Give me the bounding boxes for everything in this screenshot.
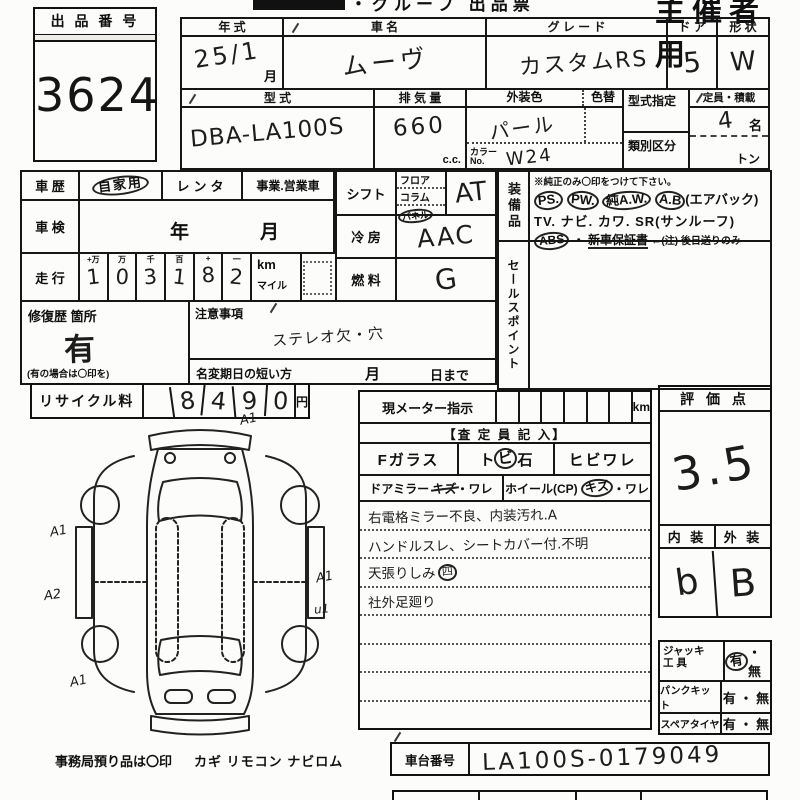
mileage-unit-cell: km マイル <box>250 252 302 302</box>
grade-cell: グ レ ー ド カスタムRS <box>485 17 668 90</box>
inspection-cell: 年 月 <box>78 199 335 254</box>
rename-day: 日まで <box>430 365 469 384</box>
door-cell: ド ア 5 <box>666 17 718 90</box>
door-label: ド ア <box>668 19 716 37</box>
displacement-cell: 排 気 量 660 c.c. <box>373 88 467 170</box>
comment-line: 天張りしみ 四 <box>360 559 650 588</box>
assessor-header: 【査 定 員 記 入】 <box>360 424 650 444</box>
history-label: 車 歴 <box>20 170 80 201</box>
inspection-label: 車 検 <box>20 199 80 254</box>
name-value: ムーヴ <box>340 39 430 84</box>
wheel-kizu: キズ <box>584 479 609 495</box>
jack-value: 有・ 無 <box>725 642 770 680</box>
windshield <box>158 478 242 521</box>
exterior-value: B <box>712 547 773 618</box>
office-note-label: 事務局預り品は〇印 <box>55 751 172 770</box>
score-value: 3.5 <box>668 434 761 502</box>
lot-rule <box>35 35 155 42</box>
year-value: 25/1 <box>192 36 261 74</box>
recycle-unit: 円 <box>294 385 308 417</box>
color-value: パール <box>487 108 556 146</box>
equipment-note: ※純正のみ〇印をつけて下さい。 <box>534 174 766 188</box>
recycle-box: リサイクル料 8 4 9 0 円 <box>30 383 310 419</box>
ac-value: AAC <box>416 220 476 254</box>
rear-bumper <box>151 716 249 735</box>
score-label: 評 価 点 <box>660 387 770 412</box>
shift-opt-column: コラム <box>397 189 445 206</box>
equip-ps: PS. <box>537 191 559 208</box>
grade-value: カスタムRS <box>518 41 649 82</box>
grade-label: グ レ ー ド <box>487 19 666 37</box>
recycle-d2: 4 <box>201 383 235 418</box>
office-note: 事務局預り品は〇印 カギ リモコン ナビロム <box>55 751 343 770</box>
shape-label: 形 状 <box>718 19 768 37</box>
diagram-mark: u1 <box>313 601 330 617</box>
history-private-label: 自家用 <box>97 174 144 194</box>
repair-note: (有の場合は〇印を) <box>27 366 109 380</box>
color-label: 外装色 <box>467 90 582 106</box>
form-title: ・グループ 出品票 <box>350 0 535 15</box>
rear-window <box>158 636 242 675</box>
equip-ab-paren: (エアバック) <box>685 192 758 207</box>
year-month-suffix: 月 <box>264 66 277 85</box>
chassis-value: LA100S-0179049 <box>470 742 723 777</box>
wheel-rr <box>282 626 318 662</box>
repair-value: 有 <box>63 323 96 369</box>
recycle-label: リサイクル料 <box>32 385 142 417</box>
sales-point-content <box>528 240 772 390</box>
chassis-box: 車台番号 LA100S-0179049 <box>390 742 770 776</box>
shape-cell: 形 状 W <box>716 17 770 90</box>
comment-line: 右電格ミラー不良、内装汚れ.A <box>360 502 650 531</box>
bottom-partial-row <box>392 790 768 800</box>
punk-value: 有 ・ 無 <box>722 682 770 712</box>
auction-sheet: ・グループ 出品票 主催者用 出 品 番 号 3624 年 式 25/1 月 車… <box>0 0 800 800</box>
comment-line: ハンドルスレ、シートカバー付.不明 <box>360 531 650 560</box>
shape-value: W <box>716 35 769 88</box>
interior-value: b <box>656 546 719 620</box>
color-cell: 外装色 色替 パール カラーNo. W24 <box>465 88 624 170</box>
mileage-d3: 3 <box>136 264 165 290</box>
mirror-kizu: キズ <box>433 480 457 497</box>
history-private: 自家用 <box>78 170 163 201</box>
comment-line <box>360 616 650 645</box>
name-label: 車 名 <box>284 19 485 37</box>
displacement-value: 660 <box>392 112 447 142</box>
year-cell: 年 式 25/1 月 <box>180 17 284 90</box>
jack-label: ジャッキ 工 具 <box>660 642 725 680</box>
wheel-rl <box>82 626 118 662</box>
class-label: 類別区分 <box>624 133 688 154</box>
mileage-mile: マイル <box>257 277 300 292</box>
comment-line <box>360 673 650 702</box>
mileage-d1: 1 <box>79 264 108 291</box>
year-label: 年 式 <box>182 19 282 37</box>
sales-point-label-cell: セールスポイント <box>497 240 530 390</box>
recycle-d1: 8 <box>169 383 204 419</box>
wheel-fr <box>281 486 319 524</box>
mileage-d4: 1 <box>165 264 194 291</box>
repair-label: 修復歴 箇所 <box>22 302 188 325</box>
color-change-label: 色替 <box>582 90 622 106</box>
inspection-year: 年 <box>170 217 189 244</box>
punk-label: パンクキット <box>660 682 722 712</box>
equip-pw: PW. <box>570 191 595 208</box>
equip-ab: A.B <box>658 191 682 208</box>
interior-label: 内 装 <box>660 526 714 547</box>
wheel-row: ホイール(CP) キズ・ワレ <box>504 476 650 500</box>
capacity-unit: 名 <box>749 115 762 134</box>
recycle-d4: 0 <box>264 384 296 418</box>
displacement-unit: c.c. <box>443 154 461 166</box>
meter-unit: km <box>631 392 650 422</box>
shift-value: AT <box>454 176 489 209</box>
repair-cell: 修復歴 箇所 有 (有の場合は〇印を) <box>20 300 190 385</box>
equip-aw: 純A.W. <box>606 191 648 209</box>
mileage-d2: 0 <box>108 264 136 290</box>
meter-label: 現メーター指示 <box>360 392 495 422</box>
spare-value: 有 ・ 無 <box>722 714 770 733</box>
assessor-table: 現メーター指示 km 【査 定 員 記 入】 Fガラス トビ石 ヒビワレ ドアミ… <box>358 390 652 730</box>
mileage-d6: 2 <box>222 264 251 290</box>
equip-line2: TV. ナビ. カワ. SR(サンルーフ) <box>534 211 766 230</box>
rename-month: 月 <box>365 363 380 384</box>
inspection-month: 月 <box>260 217 279 244</box>
capacity-cell: 定員・積載 4 名 トン <box>688 88 770 170</box>
rename-label: 名変期日の短い方 <box>196 365 292 382</box>
comment-line <box>360 702 650 729</box>
front-bumper <box>149 430 251 450</box>
shift-label: シフト <box>335 170 397 216</box>
mileage-d5: 8 <box>194 262 222 288</box>
diagram-mark: A1 <box>49 523 69 541</box>
mileage-digits: +万1 万0 千3 百1 +8 一2 <box>78 252 252 302</box>
lot-label: 出 品 番 号 <box>35 9 155 35</box>
lot-box: 出 品 番 号 3624 <box>33 7 157 162</box>
model-label: 型 式 <box>182 90 373 108</box>
spare-label: スペアタイヤ <box>660 714 722 733</box>
mileage-label: 走 行 <box>20 252 80 302</box>
diagram-mark: A2 <box>43 587 62 604</box>
comment-line <box>360 645 650 674</box>
model-cell: 型 式 DBA-LA100S <box>180 88 375 170</box>
fuel-value-cell: G <box>395 257 497 302</box>
fglass-label: Fガラス <box>360 444 459 474</box>
mileage-km: km <box>257 257 300 272</box>
exterior-label: 外 装 <box>714 526 770 547</box>
sales-point-label: セールスポイント <box>505 259 522 371</box>
chassis-label: 車台番号 <box>392 744 470 774</box>
fuel-value: G <box>433 262 459 298</box>
color-no-value: W24 <box>505 144 554 170</box>
rename-cell: 名変期日の短い方 月 日まで <box>188 358 497 385</box>
car-diagram: A1 A1 A2 A1 u1 A1 <box>48 418 352 742</box>
type-designation-cell: 型式指定 類別区分 <box>622 88 690 170</box>
office-note-items: カギ リモコン ナビロム <box>194 751 343 770</box>
door-mirror-row: ドアミラー キズ・ワレ <box>360 476 504 500</box>
ac-value-cell: AAC <box>395 214 497 259</box>
history-rental: レンタ <box>161 170 243 201</box>
equipment-content: ※純正のみ〇印をつけて下さい。 PS. PW. 純A.W. A.B(エアバック)… <box>528 170 772 242</box>
caution-value: ステレオ欠・穴 <box>271 322 384 351</box>
equipment-label-cell: 装備品 <box>497 170 530 242</box>
history-business: 事業.営業車 <box>241 170 335 201</box>
type-designation-label: 型式指定 <box>624 90 688 133</box>
name-cell: 車 名 ムーヴ <box>282 17 487 90</box>
tobi-ishi-label: トビ石 <box>459 444 555 474</box>
left-sill <box>76 527 92 618</box>
equipment-label: 装備品 <box>504 182 523 230</box>
caution-label: 注意事項 <box>190 302 495 322</box>
shift-value-cell: AT <box>445 170 497 216</box>
color-no-label: カラーNo. <box>467 148 506 167</box>
shift-opt-floor: フロア <box>397 172 445 189</box>
shift-options: フロア コラム パネル <box>395 170 447 216</box>
score-box: 評 価 点 3.5 内 装 外 装 b B <box>658 385 772 618</box>
form-logo <box>253 0 345 10</box>
fuel-label: 燃 料 <box>335 257 397 302</box>
wheel-fl <box>81 486 119 524</box>
displacement-label: 排 気 量 <box>375 90 465 108</box>
capacity-value: 4 <box>716 107 734 135</box>
door-value: 5 <box>666 35 718 89</box>
hibiware-label: ヒビワレ <box>555 444 650 474</box>
model-value: DBA-LA100S <box>189 113 345 152</box>
tools-box: ジャッキ 工 具 有・ 無 パンクキット 有 ・ 無 スペアタイヤ 有 ・ 無 <box>658 640 772 735</box>
ac-label: 冷 房 <box>335 214 397 259</box>
diagram-mark: A1 <box>315 569 335 587</box>
lot-number: 3624 <box>35 68 155 122</box>
caution-cell: 注意事項 ステレオ欠・穴 <box>188 300 497 360</box>
comment-line: 社外足廻り <box>360 588 650 617</box>
load-unit: トン <box>736 150 760 167</box>
score-value-area: 3.5 <box>660 412 770 524</box>
mileage-check-box <box>303 261 332 295</box>
